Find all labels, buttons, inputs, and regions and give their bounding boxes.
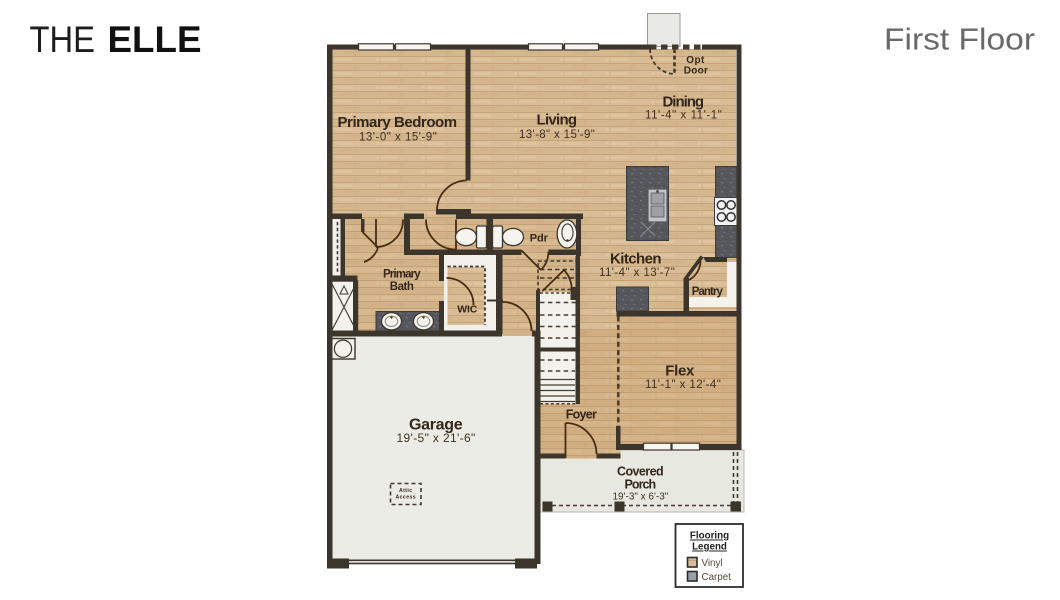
svg-text:13'-8" x 15'-9": 13'-8" x 15'-9" [519,129,595,141]
svg-text:WIC: WIC [457,304,478,316]
svg-text:19'-5" x 21'-6": 19'-5" x 21'-6" [397,431,476,445]
svg-text:Foyer: Foyer [566,408,598,422]
svg-text:Bath: Bath [390,281,415,293]
svg-text:11'-1" x 12'-4": 11'-1" x 12'-4" [645,379,721,391]
svg-text:ELLE: ELLE [108,19,202,60]
svg-text:Vinyl: Vinyl [702,558,723,569]
svg-text:Pantry: Pantry [692,286,724,298]
svg-text:Attic: Attic [399,488,413,494]
svg-text:Opt: Opt [686,55,705,66]
svg-text:Flex: Flex [665,363,695,380]
svg-text:11'-4" x 11'-1": 11'-4" x 11'-1" [645,110,722,122]
svg-text:THE: THE [30,19,96,60]
svg-text:Porch: Porch [625,478,657,492]
svg-text:Flooring: Flooring [690,531,729,542]
svg-text:Kitchen: Kitchen [610,251,662,268]
svg-text:Living: Living [537,112,578,129]
svg-text:Covered: Covered [617,465,664,479]
svg-text:First Floor: First Floor [884,23,1035,57]
svg-text:Legend: Legend [692,542,727,553]
svg-text:Pdr: Pdr [530,233,549,245]
svg-text:11'-4" x 13'-7": 11'-4" x 13'-7" [599,267,675,279]
svg-text:Door: Door [684,66,709,77]
svg-text:13'-0" x 15'-9": 13'-0" x 15'-9" [359,132,437,144]
svg-text:Primary: Primary [383,269,421,281]
svg-text:Dining: Dining [663,94,705,111]
svg-text:Access: Access [396,495,417,501]
svg-text:Carpet: Carpet [702,572,732,583]
svg-text:Primary Bedroom: Primary Bedroom [338,114,458,131]
svg-text:19'-3" x 6'-3": 19'-3" x 6'-3" [613,492,669,503]
